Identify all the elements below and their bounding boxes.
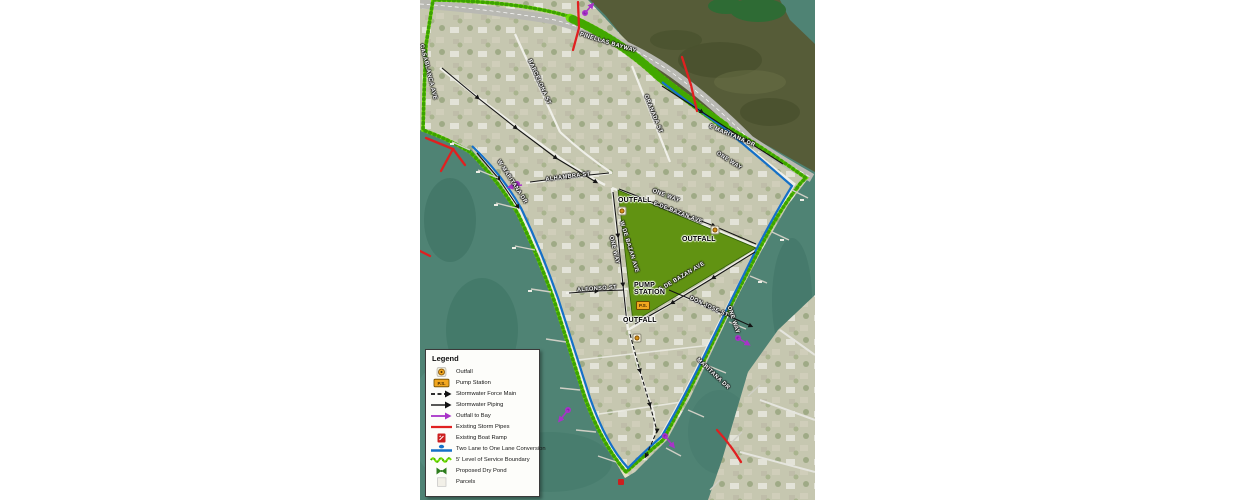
- outfall-icon: [711, 226, 720, 235]
- pump-station-label: PUMP STATION: [634, 282, 670, 296]
- outfall-icon: [633, 334, 642, 343]
- pump-station-icon: P.S.: [430, 378, 453, 388]
- boat-ramp-marker: [618, 479, 624, 485]
- legend-item: Parcels: [430, 476, 536, 487]
- boat-ramp-icon: [430, 433, 453, 443]
- legend-item: 5' Level of Service Boundary: [430, 454, 536, 465]
- page: { "map": { "streets": { "pinellas_bayway…: [0, 0, 1235, 500]
- legend-item: Two Lane to One Lane Conversion: [430, 443, 536, 454]
- force-main-icon: [430, 389, 453, 399]
- svg-text:P.S.: P.S.: [438, 380, 446, 385]
- legend-item: Outfall to Bay: [430, 410, 536, 421]
- legend-item: Stormwater Force Main: [430, 388, 536, 399]
- outfall-label: OUTFALL: [623, 317, 657, 324]
- outfall-label: OUTFALL: [618, 197, 652, 204]
- map-image: PINELLAS BAYWAY E MARITANA DR ONE WAY GR…: [420, 0, 815, 500]
- lane-conversion-icon: [430, 444, 453, 454]
- legend-item: Proposed Dry Pond: [430, 465, 536, 476]
- legend-item: Existing Boat Ramp: [430, 432, 536, 443]
- outfall-icon: [430, 367, 453, 377]
- legend: Legend Outfall P.S. Pump Station Stormwa…: [425, 349, 540, 497]
- legend-item: Outfall: [430, 366, 536, 377]
- parcels-icon: [430, 477, 453, 487]
- outfall-label: OUTFALL: [682, 236, 716, 243]
- outfall-icon: [618, 207, 627, 216]
- storm-pipes-icon: [430, 422, 453, 432]
- legend-item: Existing Storm Pipes: [430, 421, 536, 432]
- legend-title: Legend: [432, 354, 536, 363]
- piping-icon: [430, 400, 453, 410]
- outfall-to-bay-icon: [430, 411, 453, 421]
- legend-item: Stormwater Piping: [430, 399, 536, 410]
- legend-item: P.S. Pump Station: [430, 377, 536, 388]
- pump-station-icon: P.S.: [636, 301, 650, 310]
- dry-pond-icon: [430, 466, 453, 476]
- los-boundary-icon: [430, 455, 453, 465]
